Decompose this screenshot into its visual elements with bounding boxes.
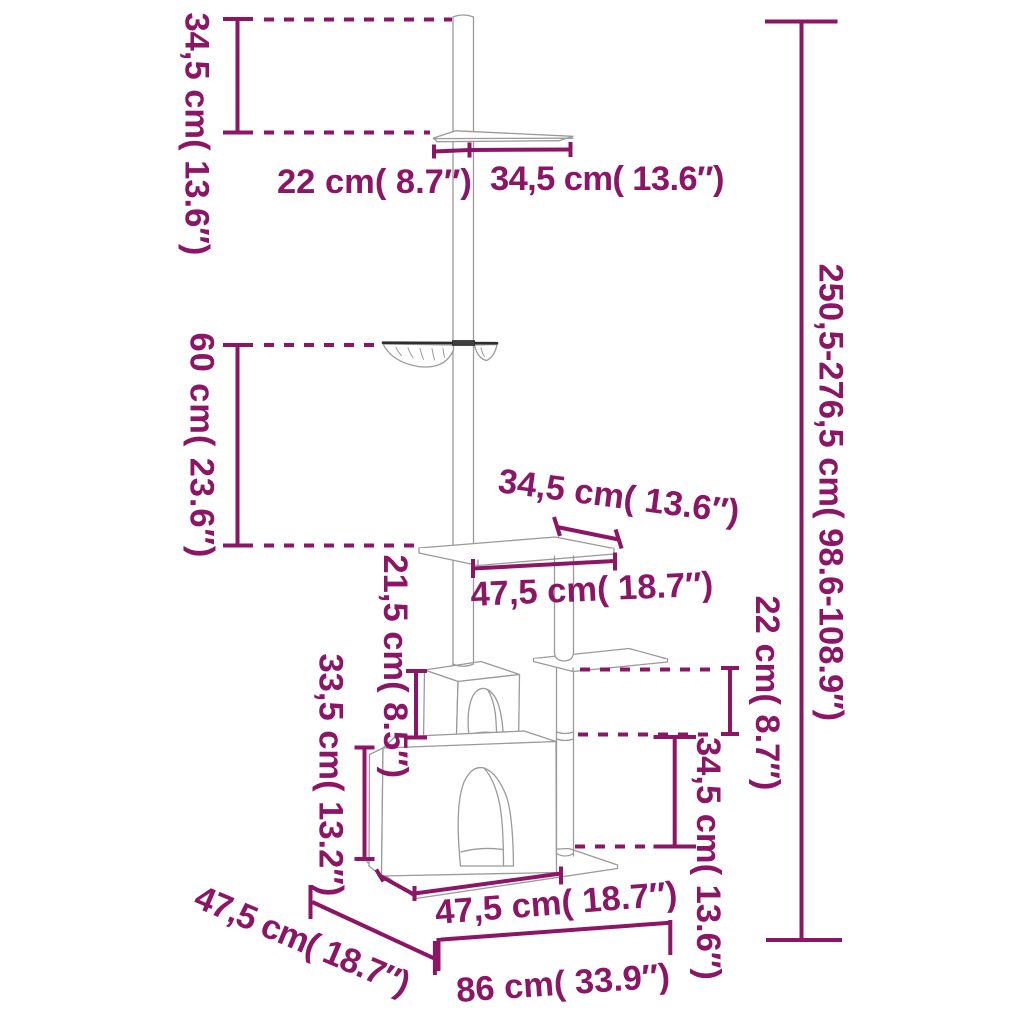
- svg-text:34,5 cm( 13.6″): 34,5 cm( 13.6″): [689, 737, 727, 980]
- svg-text:34,5 cm( 13.6″): 34,5 cm( 13.6″): [496, 462, 742, 531]
- svg-text:47,5 cm( 18.7″): 47,5 cm( 18.7″): [470, 565, 714, 614]
- svg-text:47,5 cm( 18.7″): 47,5 cm( 18.7″): [189, 878, 415, 1003]
- svg-text:60 cm( 23.6″): 60 cm( 23.6″): [183, 333, 221, 559]
- svg-text:33,5 cm( 13.2″): 33,5 cm( 13.2″): [312, 654, 350, 897]
- svg-text:34,5 cm( 13.6″): 34,5 cm( 13.6″): [490, 160, 724, 198]
- svg-text:22 cm( 8.7″): 22 cm( 8.7″): [277, 163, 472, 201]
- svg-text:21,5 cm( 8.5″): 21,5 cm( 8.5″): [376, 555, 414, 779]
- svg-text:34,5 cm( 13.6″): 34,5 cm( 13.6″): [178, 13, 216, 256]
- svg-text:250,5-276,5 cm( 98.6-108.9″): 250,5-276,5 cm( 98.6-108.9″): [812, 264, 850, 722]
- svg-text:86 cm( 33.9″): 86 cm( 33.9″): [455, 957, 671, 1010]
- svg-text:22 cm( 8.7″): 22 cm( 8.7″): [748, 596, 786, 791]
